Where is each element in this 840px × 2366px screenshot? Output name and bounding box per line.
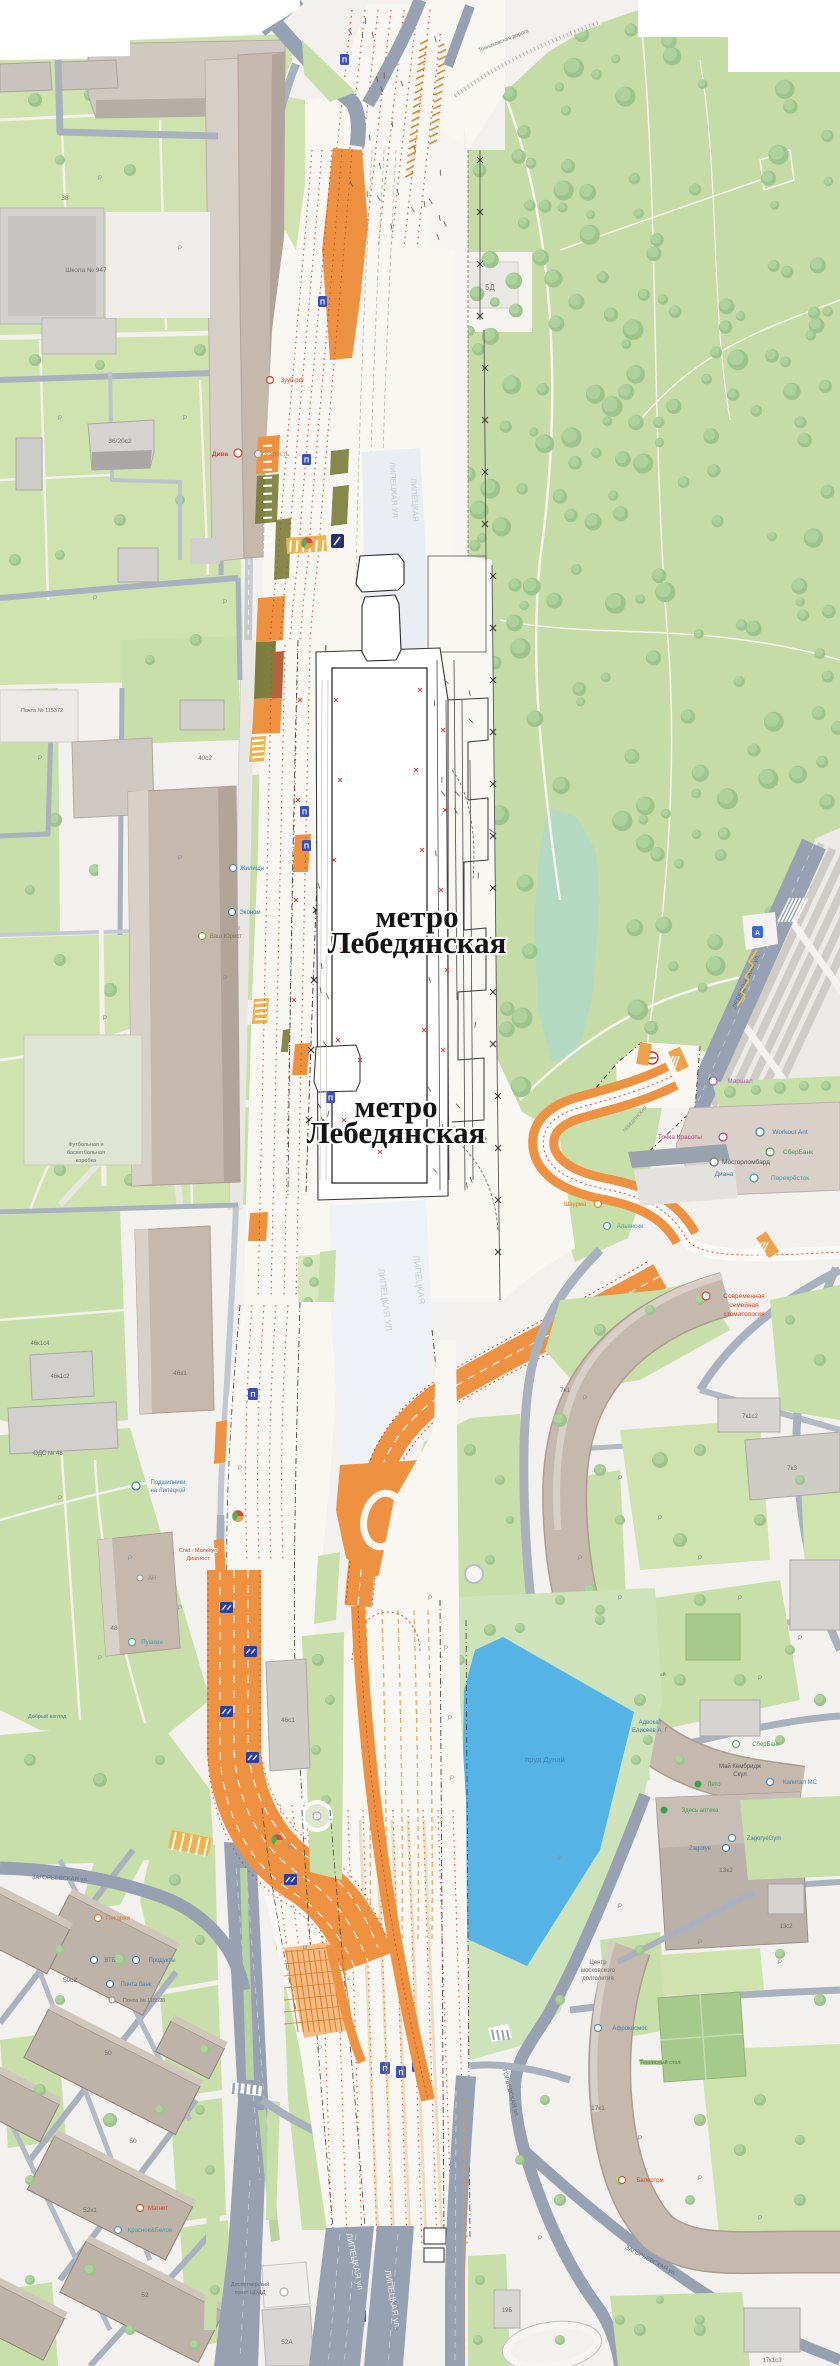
svg-text:Р: Р [778, 1959, 782, 1966]
svg-text:Пекарня: Пекарня [106, 1916, 130, 1922]
svg-text:52А: 52А [281, 2339, 293, 2346]
svg-text:Спid - Молекул: Спid - Молекул [179, 1548, 217, 1554]
svg-text:Маршал: Маршал [727, 1078, 753, 1085]
svg-text:Р: Р [578, 1555, 582, 1562]
svg-text:46к1с2: 46к1с2 [51, 1374, 71, 1380]
svg-text:Р: Р [798, 1635, 802, 1642]
svg-text:Добрый взгляд: Добрый взгляд [28, 1713, 67, 1720]
svg-text:Р: Р [428, 1595, 432, 1602]
svg-text:Лето: Лето [707, 1782, 721, 1788]
svg-text:Р: Р [658, 1515, 662, 1522]
svg-text:Магнит: Магнит [148, 2206, 168, 2212]
svg-text:Р: Р [238, 1465, 242, 1472]
svg-text:5Д: 5Д [485, 283, 495, 292]
svg-text:П: П [320, 300, 325, 307]
svg-text:коробка: коробка [76, 1158, 97, 1164]
svg-text:Р: Р [318, 2045, 322, 2052]
svg-text:СберБанк: СберБанк [752, 1742, 780, 1748]
svg-text:52к1: 52к1 [83, 2207, 97, 2214]
svg-text:пруд Дунай: пруд Дунай [525, 1755, 565, 1764]
svg-text:36/20с2: 36/20с2 [108, 438, 132, 445]
svg-text:Р: Р [303, 1945, 307, 1952]
svg-text:50с2: 50с2 [63, 1977, 77, 1984]
svg-text:50: 50 [129, 2138, 137, 2145]
svg-text:Радость: Радость [265, 451, 290, 458]
svg-text:50: 50 [104, 2050, 112, 2057]
svg-text:7к3: 7к3 [787, 1465, 797, 1472]
svg-text:Дива: Дива [212, 451, 229, 458]
svg-text:Мосгорломбард: Мосгорломбард [722, 1158, 770, 1166]
svg-text:Здесь аптека: Здесь аптека [682, 1808, 720, 1814]
svg-text:Р: Р [58, 415, 62, 422]
svg-text:Р: Р [618, 1595, 622, 1602]
svg-text:Диспетчерский: Диспетчерский [231, 2281, 269, 2288]
svg-text:Р: Р [738, 1595, 742, 1602]
svg-text:Р: Р [450, 1775, 454, 1782]
svg-text:Центр: Центр [589, 1960, 607, 1966]
svg-text:баскетбольная: баскетбольная [67, 1150, 105, 1156]
svg-text:на Липецкой: на Липецкой [150, 1487, 185, 1494]
svg-text:Жилищн: Жилищн [240, 866, 264, 872]
svg-text:46к1: 46к1 [173, 1370, 187, 1377]
svg-text:Школа № 947: Школа № 947 [65, 267, 107, 274]
svg-text:Теннисный стол: Теннисный стол [640, 2059, 681, 2066]
svg-text:Лебедянская: Лебедянская [307, 1115, 486, 1150]
svg-text:Р: Р [758, 1675, 762, 1682]
svg-text:П: П [342, 58, 347, 65]
svg-text:Р: Р [558, 1855, 562, 1862]
svg-text:Р: Р [698, 2175, 702, 2182]
svg-text:Афрокосмос: Афрокосмос [612, 2026, 647, 2032]
svg-text:Р: Р [128, 1555, 132, 1562]
svg-text:Р: Р [38, 755, 42, 762]
svg-text:Р: Р [178, 1605, 182, 1612]
svg-text:Балестом: Балестом [636, 2178, 663, 2184]
svg-text:46к1с4: 46к1с4 [31, 1341, 51, 1347]
svg-text:19Б: 19Б [502, 2308, 513, 2314]
svg-text:Р: Р [223, 975, 227, 982]
svg-text:Подшипники: Подшипники [150, 1480, 185, 1486]
svg-text:Р: Р [178, 245, 182, 252]
svg-text:ВТБ: ВТБ [104, 1958, 115, 1964]
svg-text:Красное&Белое: Красное&Белое [128, 2228, 173, 2234]
svg-text:Диана: Диана [715, 1171, 734, 1178]
svg-text:7к1с2: 7к1с2 [742, 1414, 758, 1420]
svg-text:Р: Р [583, 1395, 587, 1402]
svg-text:38: 38 [61, 195, 69, 202]
svg-text:Адвокат: Адвокат [639, 1720, 662, 1726]
svg-text:52: 52 [141, 2292, 149, 2299]
svg-text:13с2: 13с2 [779, 1924, 793, 1930]
svg-text:Почта № 115598: Почта № 115598 [123, 1998, 165, 2004]
svg-text:Елисеев А. Г: Елисеев А. Г [632, 1728, 669, 1734]
svg-text:семейная: семейная [729, 1301, 759, 1309]
svg-text:Футбольная и: Футбольная и [68, 1142, 103, 1148]
svg-text:Р: Р [538, 2235, 542, 2242]
svg-text:Р: Р [183, 415, 187, 422]
svg-text:СберБанк: СберБанк [783, 1148, 813, 1156]
svg-text:Эконом: Эконом [239, 910, 260, 916]
svg-text:Р: Р [58, 1495, 62, 1502]
svg-text:Р: Р [638, 2135, 642, 2142]
svg-text:ZagoryeGym: ZagoryeGym [747, 1836, 782, 1842]
svg-text:долголетия: долголетия [582, 1976, 613, 1982]
svg-text:Р: Р [618, 1903, 622, 1910]
svg-text:17к1: 17к1 [591, 2105, 605, 2112]
svg-text:пункт ЦОДД: пункт ЦОДД [235, 2290, 266, 2296]
svg-text:Р: Р [698, 1939, 702, 1946]
svg-text:Пушкин: Пушкин [141, 1640, 162, 1646]
svg-text:П: П [328, 1096, 333, 1103]
svg-text:46с1: 46с1 [281, 1717, 295, 1724]
svg-text:Р: Р [758, 2215, 762, 2222]
svg-text:Шаурма: Шаурма [564, 1202, 587, 1208]
svg-text:Продукты: Продукты [148, 1958, 175, 1964]
svg-text:40с2: 40с2 [198, 755, 212, 762]
svg-text:Р: Р [448, 1715, 452, 1722]
svg-text:Zagorye: Zagorye [689, 1846, 712, 1852]
svg-text:Альянс-м: Альянс-м [617, 1224, 643, 1230]
svg-text:Почта банк: Почта банк [121, 1982, 152, 1988]
svg-text:Капитал МС: Капитал МС [783, 1780, 818, 1786]
svg-text:П: П [304, 458, 309, 465]
svg-text:московского: московского [581, 1968, 616, 1974]
svg-text:стоматология: стоматология [723, 1311, 765, 1318]
svg-text:Workout Ant: Workout Ant [772, 1129, 807, 1136]
svg-text:П: П [250, 1392, 255, 1399]
svg-text:Р: Р [618, 1475, 622, 1482]
svg-text:48: 48 [110, 1625, 118, 1632]
svg-text:П: П [304, 844, 309, 851]
svg-text:13к2: 13к2 [719, 1867, 733, 1874]
svg-text:Р: Р [444, 1645, 448, 1652]
svg-text:Точка Красоты: Точка Красоты [658, 1134, 703, 1141]
svg-text:Р: Р [98, 175, 102, 182]
svg-text:Р: Р [178, 855, 182, 862]
svg-text:Зууб.рф: Зууб.рф [280, 378, 303, 384]
svg-text:Ваш Юрист: Ваш Юрист [210, 934, 243, 940]
svg-text:7к1: 7к1 [560, 1387, 570, 1394]
svg-text:17к1с3: 17к1с3 [763, 2358, 783, 2364]
svg-text:Скул: Скул [733, 1772, 747, 1778]
svg-text:Перекрёсток: Перекрёсток [771, 1175, 809, 1182]
svg-text:АН: АН [148, 1576, 156, 1582]
svg-text:П: П [302, 810, 307, 817]
svg-text:Р: Р [103, 1015, 107, 1022]
svg-text:Лебедянская: Лебедянская [328, 925, 507, 960]
svg-text:Диагност: Диагност [186, 1556, 210, 1562]
svg-text:А: А [755, 930, 760, 937]
svg-text:Май Кембридж: Май Кембридж [719, 1763, 761, 1770]
svg-text:Р: Р [288, 1845, 292, 1852]
svg-text:Р: Р [93, 595, 97, 602]
svg-text:Почта № 115372: Почта № 115372 [21, 708, 63, 714]
svg-text:Р: Р [698, 1555, 702, 1562]
svg-text:Современная: Современная [723, 1293, 765, 1300]
svg-text:Р: Р [98, 1655, 102, 1662]
svg-text:Р: Р [223, 599, 227, 606]
svg-text:ОДС № 46: ОДС № 46 [33, 1450, 63, 1457]
